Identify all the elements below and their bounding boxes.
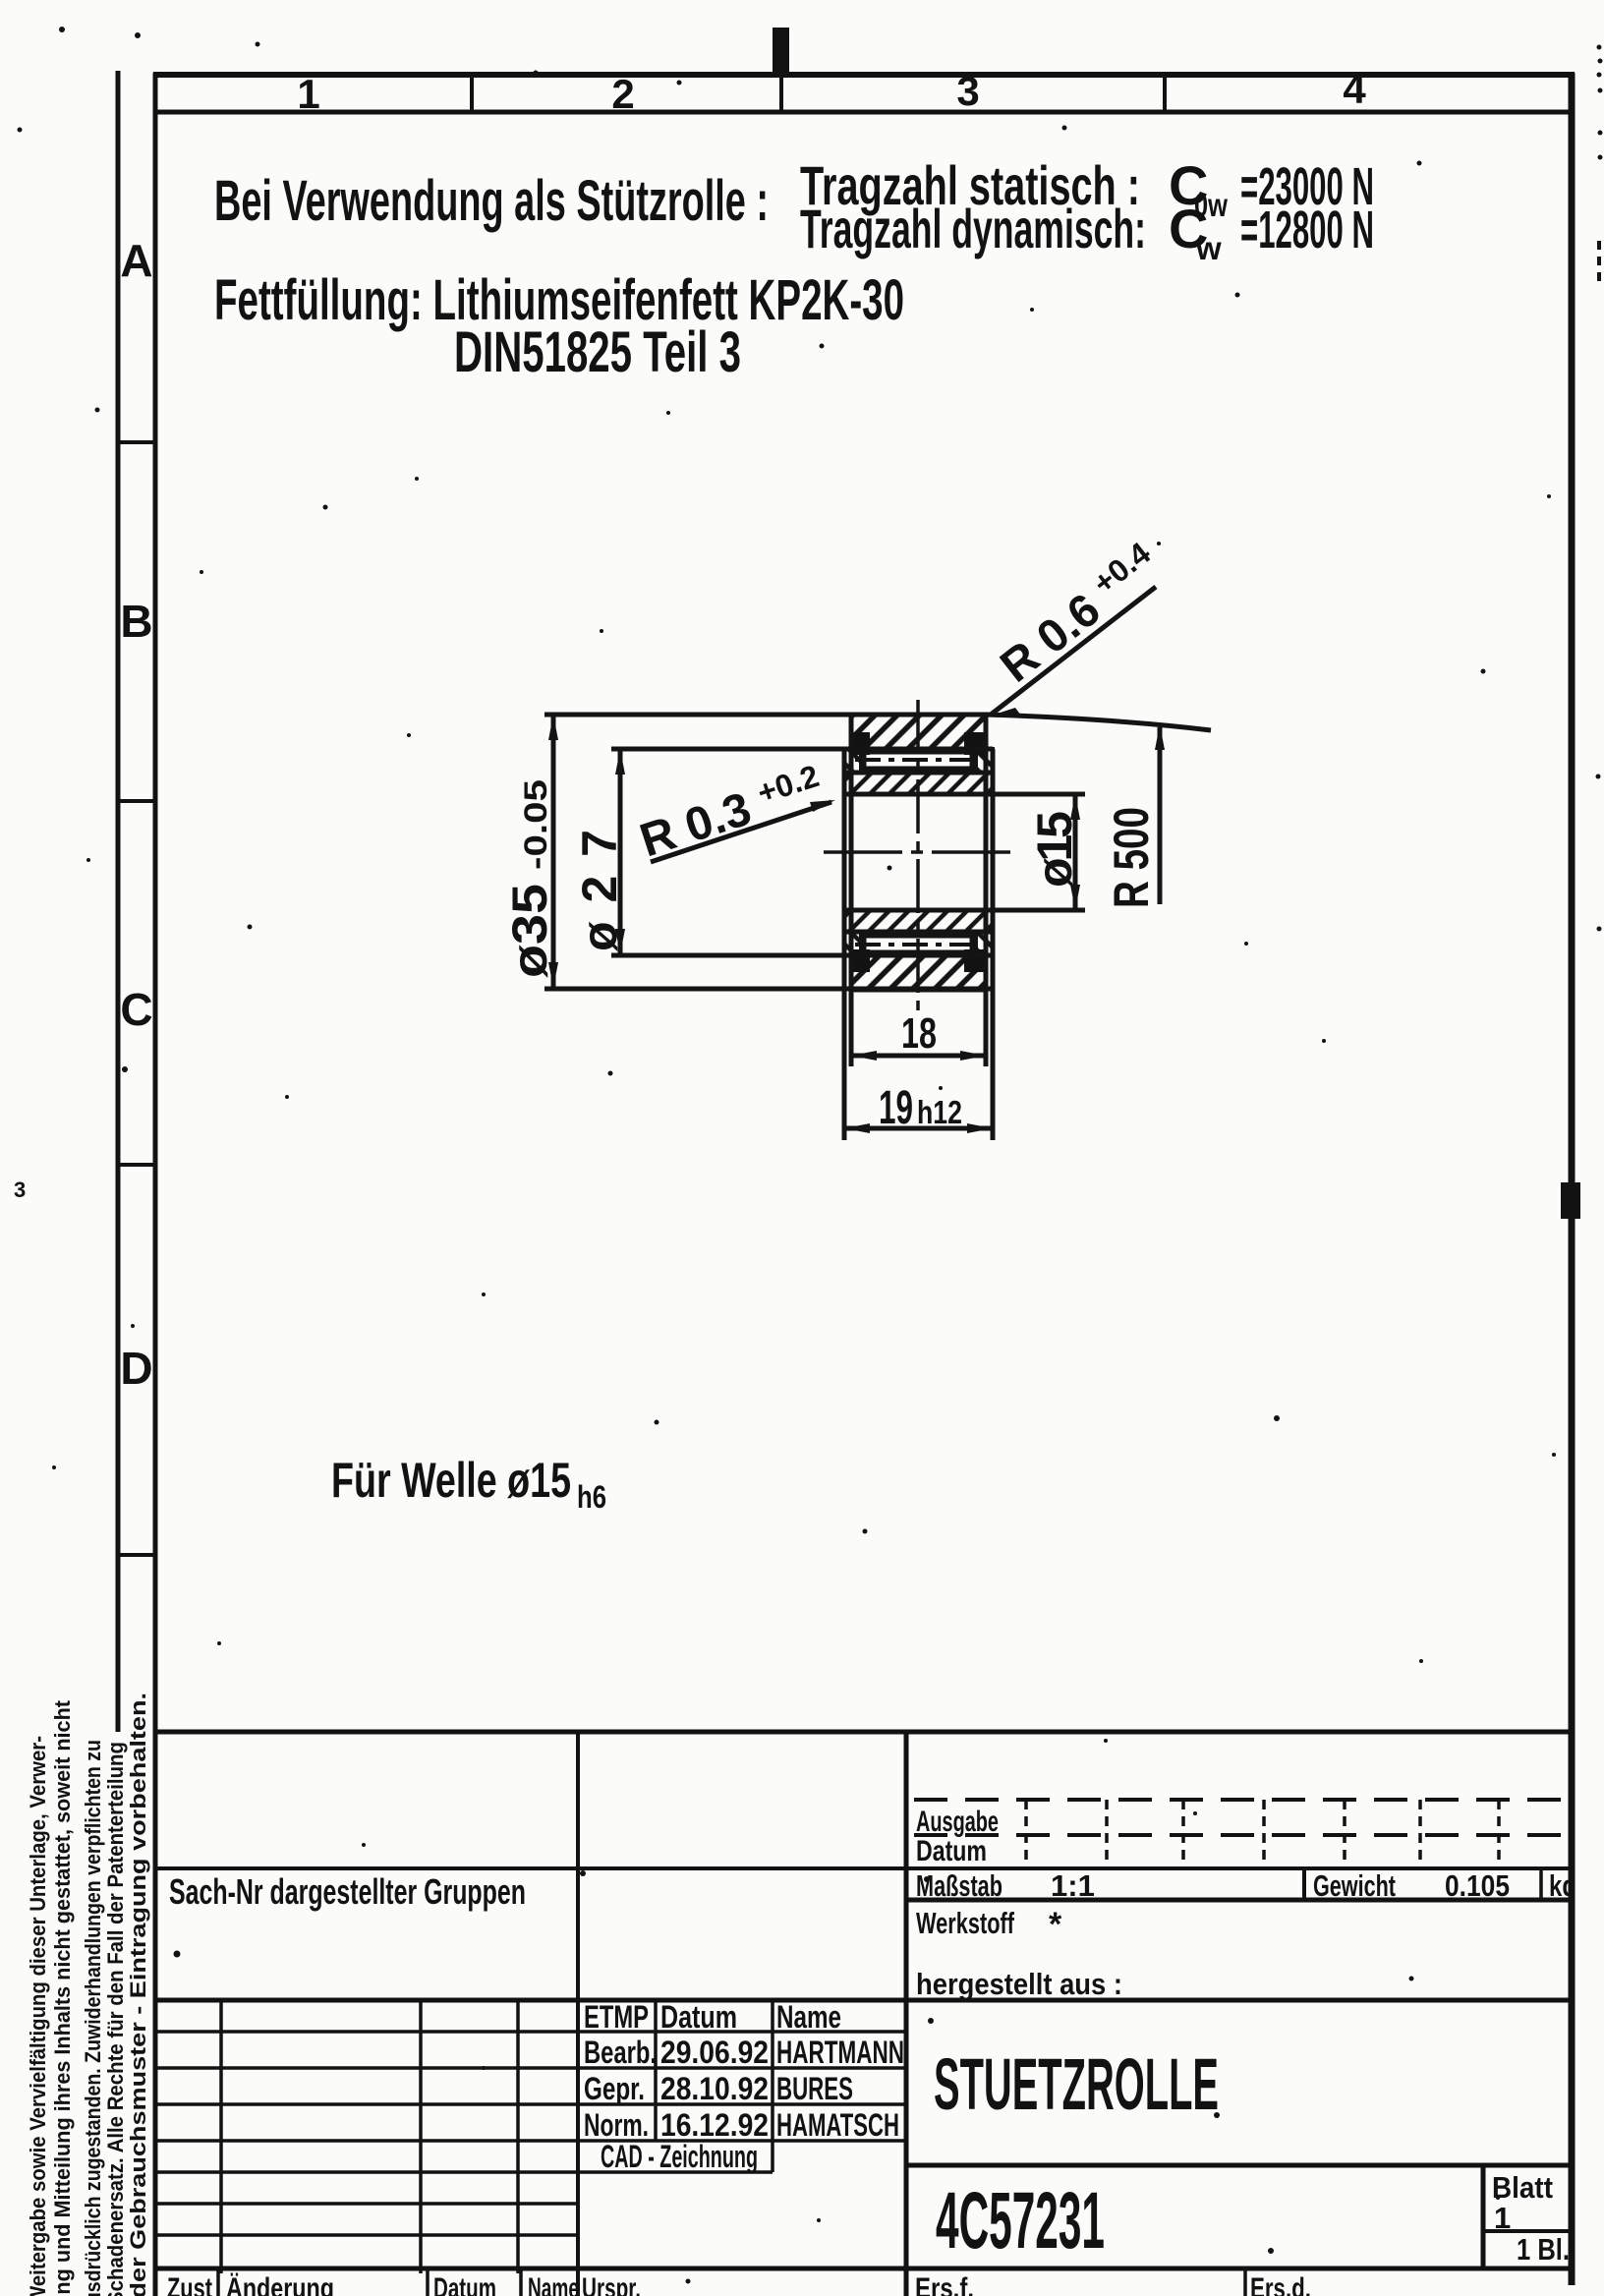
svg-text:Für Welle ø15: Für Welle ø15 — [331, 1453, 571, 1508]
svg-text:ausdrücklich zugestanden. Zuwi: ausdrücklich zugestanden. Zuwiderhandlun… — [81, 1740, 105, 2296]
svg-text:kg: kg — [1549, 1868, 1576, 1903]
svg-text:R 500: R 500 — [1104, 807, 1159, 908]
svg-text:Urspr.: Urspr. — [582, 2272, 641, 2296]
svg-text:Bearb.: Bearb. — [584, 2035, 657, 2070]
svg-text:-0.05: -0.05 — [518, 779, 553, 870]
svg-text:Datum: Datum — [433, 2272, 496, 2296]
svg-text:18: 18 — [901, 1009, 937, 1058]
svg-text:BURES: BURES — [776, 2071, 853, 2106]
svg-text:Name: Name — [776, 1999, 841, 2035]
svg-text:1:1: 1:1 — [1051, 1868, 1095, 1903]
svg-text:CAD - Zeichnung: CAD - Zeichnung — [601, 2139, 758, 2174]
svg-text:tung und Mitteilung ihres Inha: tung und Mitteilung ihres Inhalts nicht … — [50, 1699, 75, 2296]
svg-text:Bei Verwendung als Stützrolle: Bei Verwendung als Stützrolle : — [214, 169, 769, 233]
svg-text:2: 2 — [611, 71, 634, 117]
svg-text:A: A — [120, 235, 152, 286]
svg-text:w: w — [1195, 230, 1222, 266]
svg-text:Zust: Zust — [167, 2272, 212, 2296]
svg-text:ø27: ø27 — [572, 830, 627, 951]
svg-text:HARTMANN: HARTMANN — [776, 2035, 904, 2070]
svg-text:Ers.d.: Ers.d. — [1250, 2272, 1311, 2296]
svg-text:Maßstab: Maßstab — [916, 1868, 1002, 1903]
svg-text:4C57231: 4C57231 — [936, 2176, 1105, 2266]
svg-text:4: 4 — [1343, 66, 1366, 112]
svg-text:19: 19 — [879, 1082, 913, 1134]
svg-text:Name: Name — [528, 2272, 579, 2296]
svg-text:oder Gebrauchsmuster - Eintrag: oder Gebrauchsmuster - Eintragung vorbeh… — [126, 1693, 150, 2296]
svg-text:Gepr.: Gepr. — [584, 2071, 645, 2106]
svg-text:3: 3 — [14, 1177, 26, 1202]
svg-text:hergestellt aus :: hergestellt aus : — [916, 1967, 1122, 2001]
svg-text:=12800 N: =12800 N — [1240, 201, 1374, 259]
svg-text:ETMP: ETMP — [584, 1999, 649, 2035]
svg-text:HAMATSCH: HAMATSCH — [776, 2107, 899, 2143]
svg-text:Datum: Datum — [916, 1835, 987, 1867]
svg-text:C: C — [120, 984, 152, 1035]
svg-text:Schadenersatz. Alle Rechte für: Schadenersatz. Alle Rechte für den Fall … — [103, 1742, 128, 2296]
svg-text:1 Bl.: 1 Bl. — [1517, 2232, 1570, 2267]
svg-text:*: * — [1049, 1906, 1062, 1943]
svg-text:ø15: ø15 — [1027, 811, 1082, 888]
svg-text:STUETZROLLE: STUETZROLLE — [934, 2043, 1219, 2125]
svg-text:Tragzahl dynamisch:: Tragzahl dynamisch: — [800, 198, 1146, 259]
svg-text:Blatt: Blatt — [1492, 2170, 1553, 2205]
svg-text:Werkstoff: Werkstoff — [916, 1906, 1014, 1940]
svg-text:3: 3 — [956, 68, 979, 114]
svg-text:16.12.92: 16.12.92 — [660, 2107, 769, 2143]
svg-text:B: B — [120, 596, 152, 647]
svg-text:h6: h6 — [577, 1479, 606, 1515]
svg-text:DIN51825 Teil 3: DIN51825 Teil 3 — [454, 320, 741, 384]
svg-text:D: D — [120, 1343, 152, 1394]
svg-text:Datum: Datum — [660, 1999, 737, 2035]
svg-text:0.105: 0.105 — [1445, 1868, 1510, 1903]
svg-text:Sach-Nr dargestellter Gruppen: Sach-Nr dargestellter Gruppen — [169, 1871, 526, 1912]
svg-text:Änderung: Änderung — [226, 2272, 334, 2296]
svg-text:ø35: ø35 — [502, 884, 557, 978]
svg-text:Norm.: Norm. — [584, 2107, 649, 2143]
svg-text:28.10.92: 28.10.92 — [660, 2071, 769, 2106]
svg-text:Weitergabe sowie Vervielfältig: Weitergabe sowie Vervielfältigung dieser… — [26, 1736, 50, 2296]
svg-text:Gewicht: Gewicht — [1313, 1868, 1396, 1903]
svg-text:h12: h12 — [917, 1094, 962, 1130]
svg-text:Ausgabe: Ausgabe — [916, 1806, 999, 1838]
svg-text:1: 1 — [297, 71, 319, 117]
svg-text:Ers.f.: Ers.f. — [915, 2272, 974, 2296]
svg-text:29.06.92: 29.06.92 — [660, 2035, 769, 2070]
